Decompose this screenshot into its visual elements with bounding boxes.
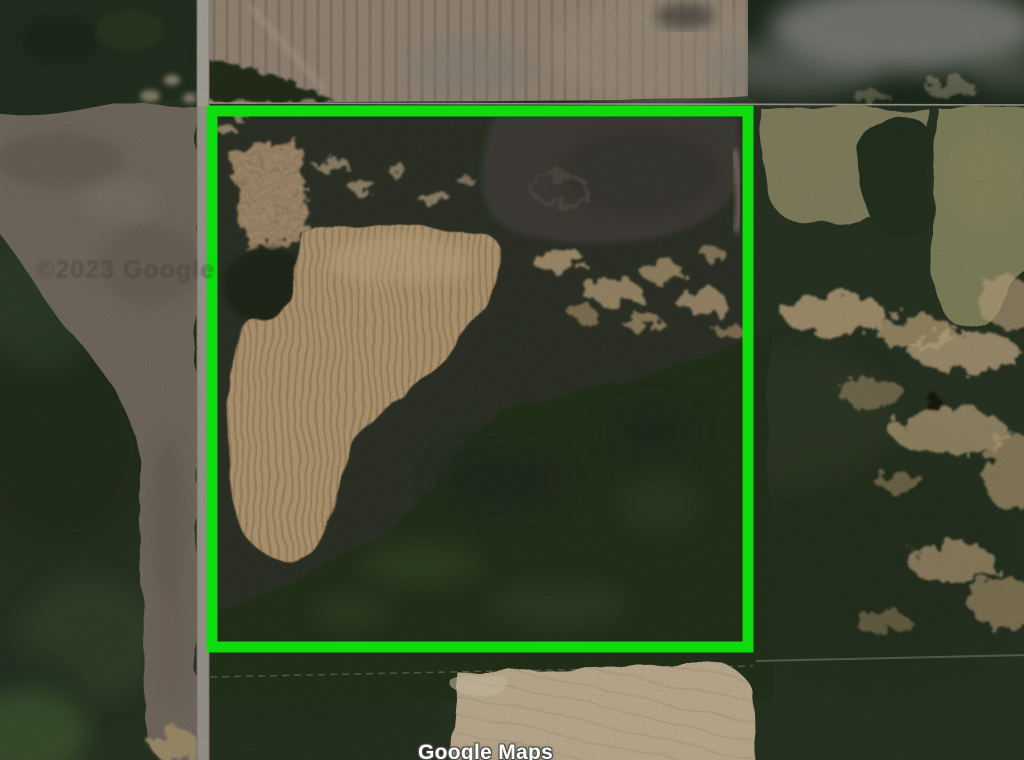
map-viewport[interactable]: ©2023 Google Google Maps	[0, 0, 1024, 760]
google-maps-label[interactable]: Google Maps	[418, 741, 553, 760]
attribution-watermark: ©2023 Google	[36, 256, 215, 285]
satellite-imagery	[0, 0, 1024, 760]
